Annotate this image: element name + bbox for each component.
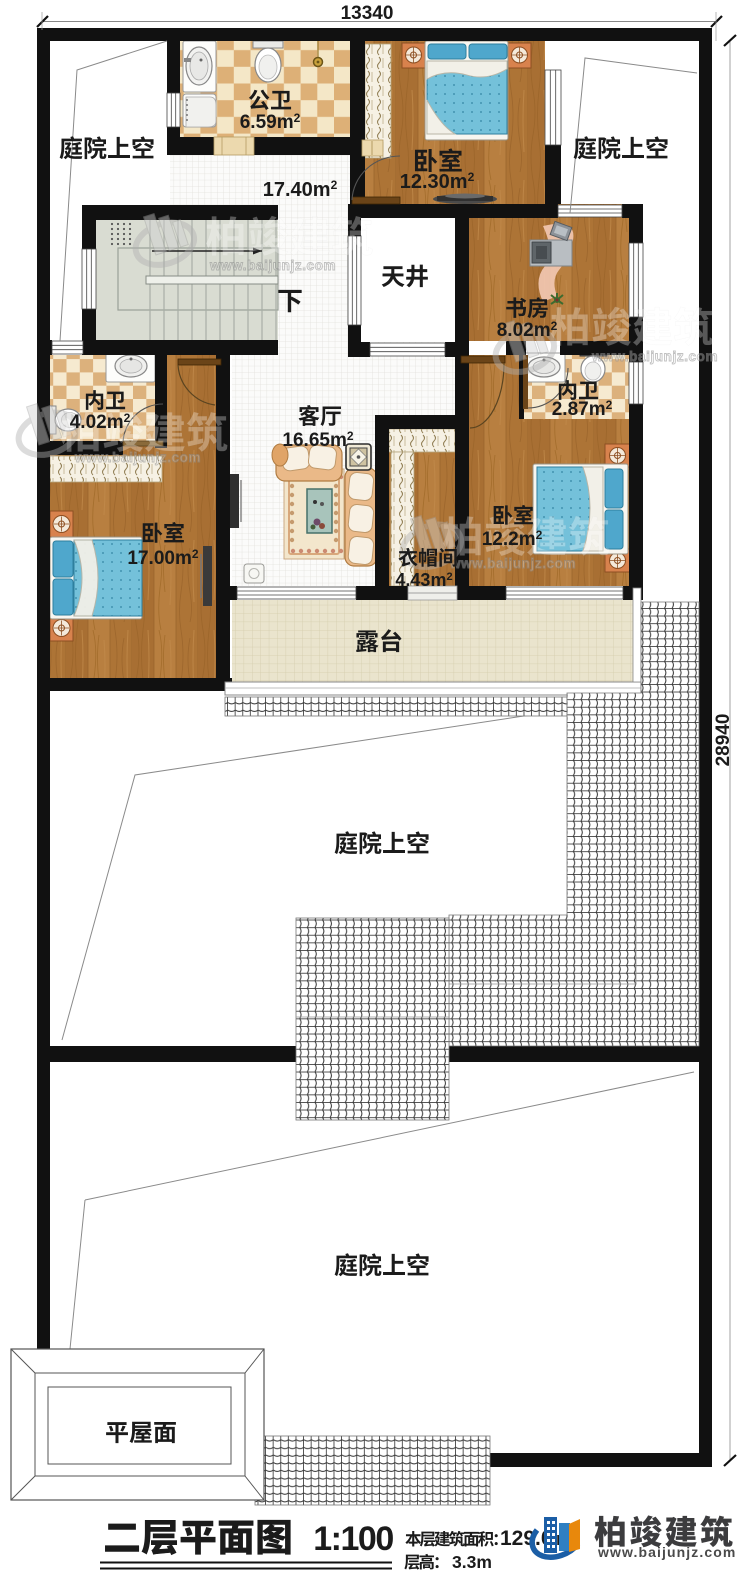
svg-text:www.baijunjz.com: www.baijunjz.com: [74, 450, 201, 465]
svg-text:17.40m2: 17.40m2: [263, 178, 338, 201]
svg-text:3.3m: 3.3m: [452, 1552, 492, 1572]
svg-text:8.02m2: 8.02m2: [497, 319, 558, 341]
svg-text:2.87m2: 2.87m2: [552, 398, 613, 420]
svg-text:12.2m2: 12.2m2: [482, 528, 543, 550]
svg-text:28940: 28940: [713, 714, 734, 767]
svg-text:www.baijunjz.com: www.baijunjz.com: [597, 1544, 736, 1560]
svg-text:13340: 13340: [341, 3, 394, 24]
svg-text:17.00m2: 17.00m2: [127, 547, 198, 569]
svg-text:www.baijunjz.com: www.baijunjz.com: [591, 349, 718, 364]
svg-text:4.43m2: 4.43m2: [395, 570, 452, 590]
svg-text:12.30m2: 12.30m2: [400, 170, 475, 193]
svg-text:www.baijunjz.com: www.baijunjz.com: [449, 556, 576, 571]
svg-text:4.02m2: 4.02m2: [70, 411, 131, 433]
svg-text:16.65m2: 16.65m2: [282, 429, 353, 451]
svg-text:6.59m2: 6.59m2: [240, 111, 301, 133]
svg-text:1:100: 1:100: [313, 1520, 393, 1558]
svg-text:www.baijunjz.com: www.baijunjz.com: [209, 258, 336, 273]
